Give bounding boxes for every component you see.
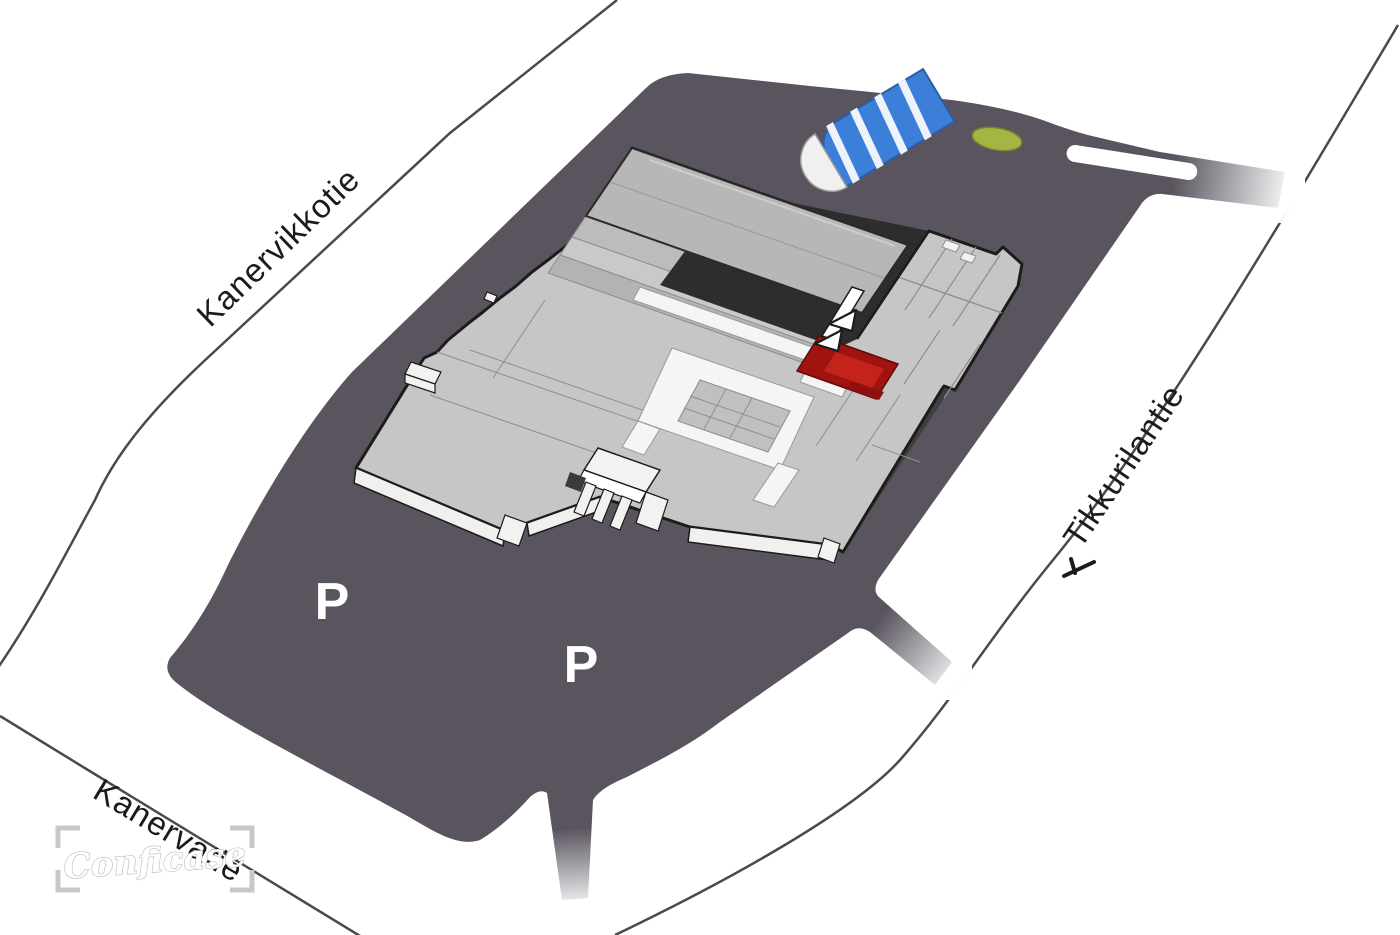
parking-label-left: P <box>315 573 350 631</box>
site-map: Kanervikkotie Tikkurilantie Kanervatie P… <box>0 0 1400 935</box>
site-map-canvas: Kanervikkotie Tikkurilantie Kanervatie P… <box>0 0 1400 935</box>
parking-label-right: P <box>564 636 599 694</box>
